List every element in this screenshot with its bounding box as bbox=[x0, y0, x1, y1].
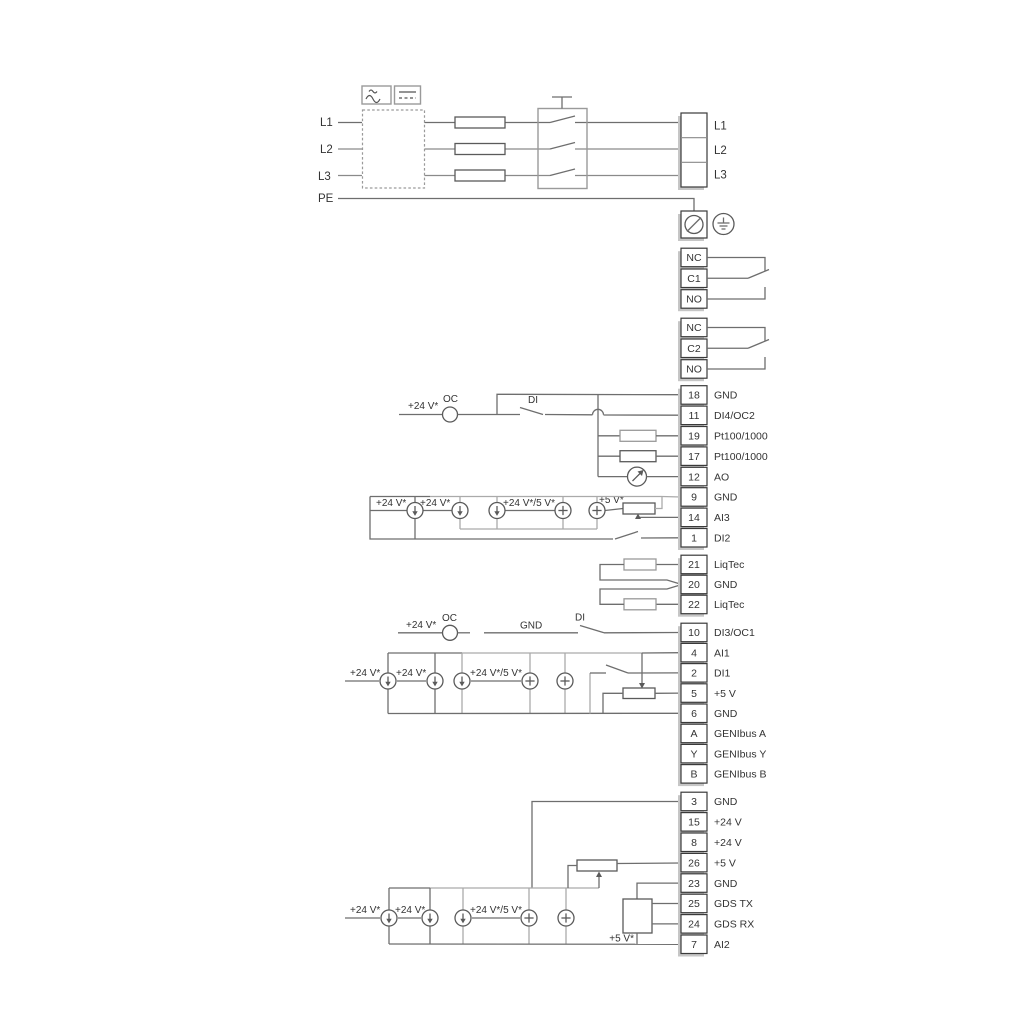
terminal-label: AI2 bbox=[714, 939, 730, 951]
relay1-no: NO bbox=[686, 294, 702, 306]
gds-sensor-box bbox=[623, 899, 652, 933]
current-source-icon bbox=[381, 910, 397, 926]
current-source-icon bbox=[452, 503, 468, 519]
terminal-number: 14 bbox=[688, 512, 700, 524]
label-24v-b2: +24 V* bbox=[396, 668, 426, 679]
relay1-c1: C1 bbox=[687, 273, 701, 285]
current-source-icon bbox=[380, 673, 396, 689]
terminal-number: 15 bbox=[688, 817, 700, 829]
label-24v-oc1: +24 V* bbox=[406, 620, 436, 631]
current-source-icon bbox=[407, 503, 423, 519]
terminal-number: 24 bbox=[688, 919, 700, 931]
potentiometer-ai2 bbox=[577, 860, 617, 871]
label-di3: DI bbox=[575, 613, 585, 624]
relay2-nc: NC bbox=[686, 322, 702, 334]
terminal-number: 22 bbox=[688, 599, 700, 611]
current-source-icon bbox=[427, 673, 443, 689]
terminal-label: +5 V bbox=[714, 688, 736, 700]
terminal-number: 2 bbox=[691, 668, 697, 680]
relay1-nc: NC bbox=[686, 252, 702, 264]
wiring-diagram: L1 L2 L3 PE bbox=[0, 0, 1024, 1024]
fuse-l3 bbox=[455, 170, 505, 181]
terminal-number: 23 bbox=[688, 878, 700, 890]
mains-in-l3: L3 bbox=[318, 171, 331, 183]
label-24v-oc2: +24 V* bbox=[408, 401, 438, 412]
potentiometer-ai1 bbox=[623, 688, 655, 699]
terminal-label: LiqTec bbox=[714, 599, 744, 611]
terminal-number: 1 bbox=[691, 533, 697, 545]
liqtec-sensor-1 bbox=[624, 559, 656, 570]
label-oc2: OC bbox=[443, 394, 458, 405]
terminal-label: GND bbox=[714, 579, 738, 591]
terminal-label: GDS RX bbox=[714, 919, 754, 931]
terminal-number: 11 bbox=[689, 410, 700, 422]
pe-terminal bbox=[678, 211, 707, 241]
terminal-number: 25 bbox=[688, 898, 700, 910]
fuses bbox=[455, 117, 505, 181]
terminal-label: DI1 bbox=[714, 668, 731, 680]
voltage-source-icon bbox=[555, 503, 571, 519]
terminal-label: DI4/OC2 bbox=[714, 410, 755, 422]
terminal-label: DI3/OC1 bbox=[714, 627, 755, 639]
label-24v-a1: +24 V* bbox=[376, 498, 406, 509]
mains-out-l2: L2 bbox=[714, 145, 727, 157]
terminal-label: GND bbox=[714, 708, 738, 720]
terminal-label: GENIbus B bbox=[714, 769, 767, 781]
voltage-source-icon bbox=[589, 503, 605, 519]
label-gnd-oc1: GND bbox=[520, 621, 542, 632]
terminal-label: GND bbox=[714, 796, 738, 808]
terminal-label: GND bbox=[714, 390, 738, 402]
background bbox=[0, 0, 1024, 1024]
current-source-icon bbox=[489, 503, 505, 519]
voltage-source-icon bbox=[521, 910, 537, 926]
liqtec-sensor-2 bbox=[624, 599, 656, 610]
mains-in-l1: L1 bbox=[320, 117, 333, 129]
label-24v-b1: +24 V* bbox=[350, 668, 380, 679]
label-24v-c2: +24 V* bbox=[395, 905, 425, 916]
terminal-number: 9 bbox=[691, 492, 697, 504]
terminal-number: 4 bbox=[691, 647, 697, 659]
voltage-source-icon bbox=[558, 910, 574, 926]
terminal-label: AI1 bbox=[714, 647, 730, 659]
open-collector-icon bbox=[443, 407, 458, 422]
terminal-label: DI2 bbox=[714, 533, 731, 545]
terminal-number: 5 bbox=[691, 688, 697, 700]
terminal-number: 7 bbox=[691, 939, 697, 951]
mains-terminal-block: L1 L2 L3 bbox=[678, 113, 727, 190]
mains-in-l2: L2 bbox=[320, 144, 333, 156]
label-di4: DI bbox=[528, 395, 538, 406]
terminal-label: AI3 bbox=[714, 512, 730, 524]
label-oc1: OC bbox=[442, 613, 457, 624]
terminal-number: 18 bbox=[688, 390, 700, 402]
terminal-label: GDS TX bbox=[714, 898, 753, 910]
label-24v-a2: +24 V* bbox=[420, 498, 450, 509]
terminal-number: 8 bbox=[691, 837, 697, 849]
terminal-label: LiqTec bbox=[714, 559, 744, 571]
terminal-number: 19 bbox=[688, 431, 700, 443]
terminal-label: GND bbox=[714, 878, 738, 890]
relay2-no: NO bbox=[686, 364, 702, 376]
label-24v5v-c: +24 V*/5 V* bbox=[470, 905, 522, 916]
terminal-label: Pt100/1000 bbox=[714, 451, 768, 463]
terminal-label: GENIbus A bbox=[714, 728, 766, 740]
pt100-sensor-2 bbox=[620, 451, 656, 462]
terminal-number: 12 bbox=[688, 471, 700, 483]
label-24v-c1: +24 V* bbox=[350, 905, 380, 916]
terminal-label: Pt100/1000 bbox=[714, 431, 768, 443]
voltage-source-icon bbox=[522, 673, 538, 689]
terminal-label: AO bbox=[714, 471, 729, 483]
label-5v-gds: +5 V* bbox=[609, 934, 634, 945]
current-source-icon bbox=[454, 673, 470, 689]
label-24v5v-b: +24 V*/5 V* bbox=[470, 668, 522, 679]
label-24v5v-a: +24 V*/5 V* bbox=[503, 498, 555, 509]
terminal-number: 10 bbox=[688, 627, 700, 639]
potentiometer-ai3 bbox=[623, 503, 655, 514]
terminal-number: 17 bbox=[688, 451, 700, 463]
terminal-number: 21 bbox=[688, 559, 700, 571]
mains-out-l1: L1 bbox=[714, 120, 727, 132]
terminal-label: +24 V bbox=[714, 817, 742, 829]
terminal-number: B bbox=[690, 769, 697, 781]
terminal-label: +24 V bbox=[714, 837, 742, 849]
terminal-number: 20 bbox=[688, 579, 700, 591]
open-collector-icon bbox=[443, 625, 458, 640]
terminal-number: 3 bbox=[691, 796, 697, 808]
fuse-l2 bbox=[455, 144, 505, 155]
current-source-icon bbox=[455, 910, 471, 926]
terminal-number: 26 bbox=[688, 857, 700, 869]
mains-in-pe: PE bbox=[318, 193, 334, 205]
terminal-label: +5 V bbox=[714, 857, 736, 869]
terminal-number: 6 bbox=[691, 708, 697, 720]
fuse-l1 bbox=[455, 117, 505, 128]
current-source-icon bbox=[422, 910, 438, 926]
terminal-number: Y bbox=[690, 748, 697, 760]
terminal-number: A bbox=[690, 728, 697, 740]
wiring-diagram-page: L1 L2 L3 PE bbox=[0, 0, 1024, 1024]
relay2-c2: C2 bbox=[687, 343, 701, 355]
pt100-sensor-1 bbox=[620, 430, 656, 441]
terminal-label: GND bbox=[714, 492, 738, 504]
mains-out-l3: L3 bbox=[714, 170, 727, 182]
earth-symbol bbox=[713, 214, 734, 235]
voltage-source-icon bbox=[557, 673, 573, 689]
terminal-label: GENIbus Y bbox=[714, 748, 766, 760]
